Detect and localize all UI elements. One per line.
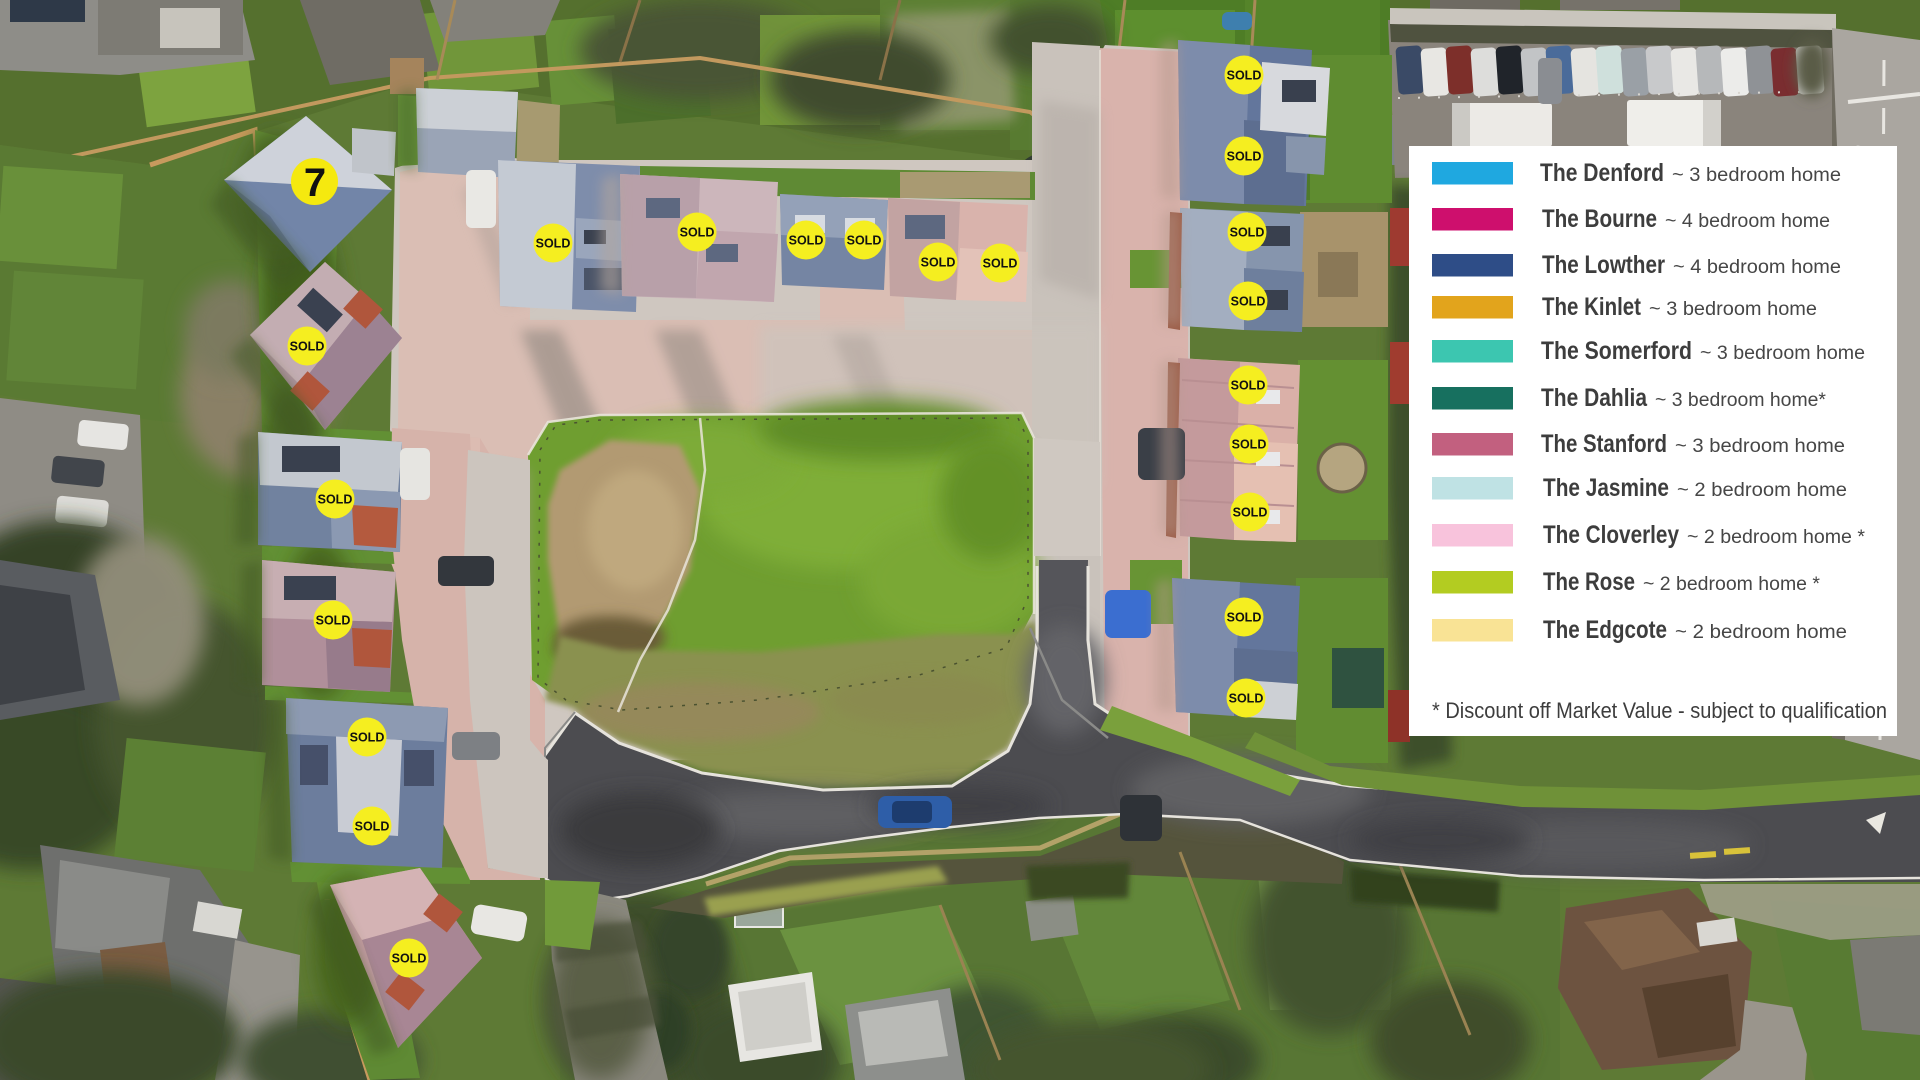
svg-text:The Edgcote: The Edgcote: [1543, 616, 1667, 644]
svg-text:The Stanford: The Stanford: [1541, 430, 1667, 458]
svg-text:~ 3 bedroom home: ~ 3 bedroom home: [1649, 298, 1817, 320]
svg-text:~ 2 bedroom home *: ~ 2 bedroom home *: [1643, 573, 1820, 595]
svg-text:The Somerford: The Somerford: [1541, 337, 1692, 365]
svg-text:SOLD: SOLD: [536, 237, 571, 251]
svg-text:The Dahlia: The Dahlia: [1541, 384, 1648, 412]
svg-text:SOLD: SOLD: [1233, 506, 1268, 520]
svg-text:SOLD: SOLD: [1232, 438, 1267, 452]
svg-text:* Discount off Market Value -: * Discount off Market Value - subject to…: [1432, 698, 1887, 723]
svg-text:SOLD: SOLD: [1231, 295, 1266, 309]
svg-text:The Cloverley: The Cloverley: [1543, 521, 1679, 549]
svg-text:SOLD: SOLD: [680, 226, 715, 240]
svg-text:The Lowther: The Lowther: [1542, 251, 1665, 279]
svg-text:~ 4 bedroom home: ~ 4 bedroom home: [1673, 256, 1841, 278]
svg-text:SOLD: SOLD: [847, 234, 882, 248]
svg-text:The Denford: The Denford: [1540, 159, 1664, 187]
svg-text:~ 3 bedroom home: ~ 3 bedroom home: [1672, 164, 1841, 186]
svg-text:SOLD: SOLD: [983, 257, 1018, 271]
svg-text:SOLD: SOLD: [921, 256, 956, 270]
svg-text:SOLD: SOLD: [318, 493, 353, 507]
svg-text:~ 3 bedroom home: ~ 3 bedroom home: [1700, 342, 1865, 364]
svg-text:SOLD: SOLD: [1229, 692, 1264, 706]
svg-text:SOLD: SOLD: [1227, 150, 1262, 164]
svg-text:The Rose: The Rose: [1543, 568, 1635, 596]
svg-text:~ 2 bedroom home: ~ 2 bedroom home: [1677, 479, 1847, 501]
svg-text:SOLD: SOLD: [789, 234, 824, 248]
svg-text:SOLD: SOLD: [1227, 611, 1262, 625]
svg-text:SOLD: SOLD: [1230, 226, 1265, 240]
svg-text:~ 2 bedroom home: ~ 2 bedroom home: [1675, 621, 1847, 643]
svg-text:~ 3 bedroom home: ~ 3 bedroom home: [1675, 435, 1845, 457]
svg-text:The Bourne: The Bourne: [1542, 205, 1657, 233]
svg-text:SOLD: SOLD: [392, 952, 427, 966]
svg-text:~ 4 bedroom home: ~ 4 bedroom home: [1665, 210, 1830, 232]
svg-text:SOLD: SOLD: [1227, 69, 1262, 83]
svg-text:7: 7: [304, 161, 326, 205]
svg-text:The Jasmine: The Jasmine: [1543, 474, 1669, 502]
svg-text:~ 2 bedroom home *: ~ 2 bedroom home *: [1687, 526, 1865, 548]
svg-text:SOLD: SOLD: [355, 820, 390, 834]
svg-text:SOLD: SOLD: [290, 340, 325, 354]
svg-text:SOLD: SOLD: [350, 731, 385, 745]
svg-text:The Kinlet: The Kinlet: [1542, 293, 1642, 321]
svg-text:SOLD: SOLD: [1231, 379, 1266, 393]
svg-text:~ 3 bedroom home*: ~ 3 bedroom home*: [1655, 389, 1826, 411]
svg-text:SOLD: SOLD: [316, 614, 351, 628]
